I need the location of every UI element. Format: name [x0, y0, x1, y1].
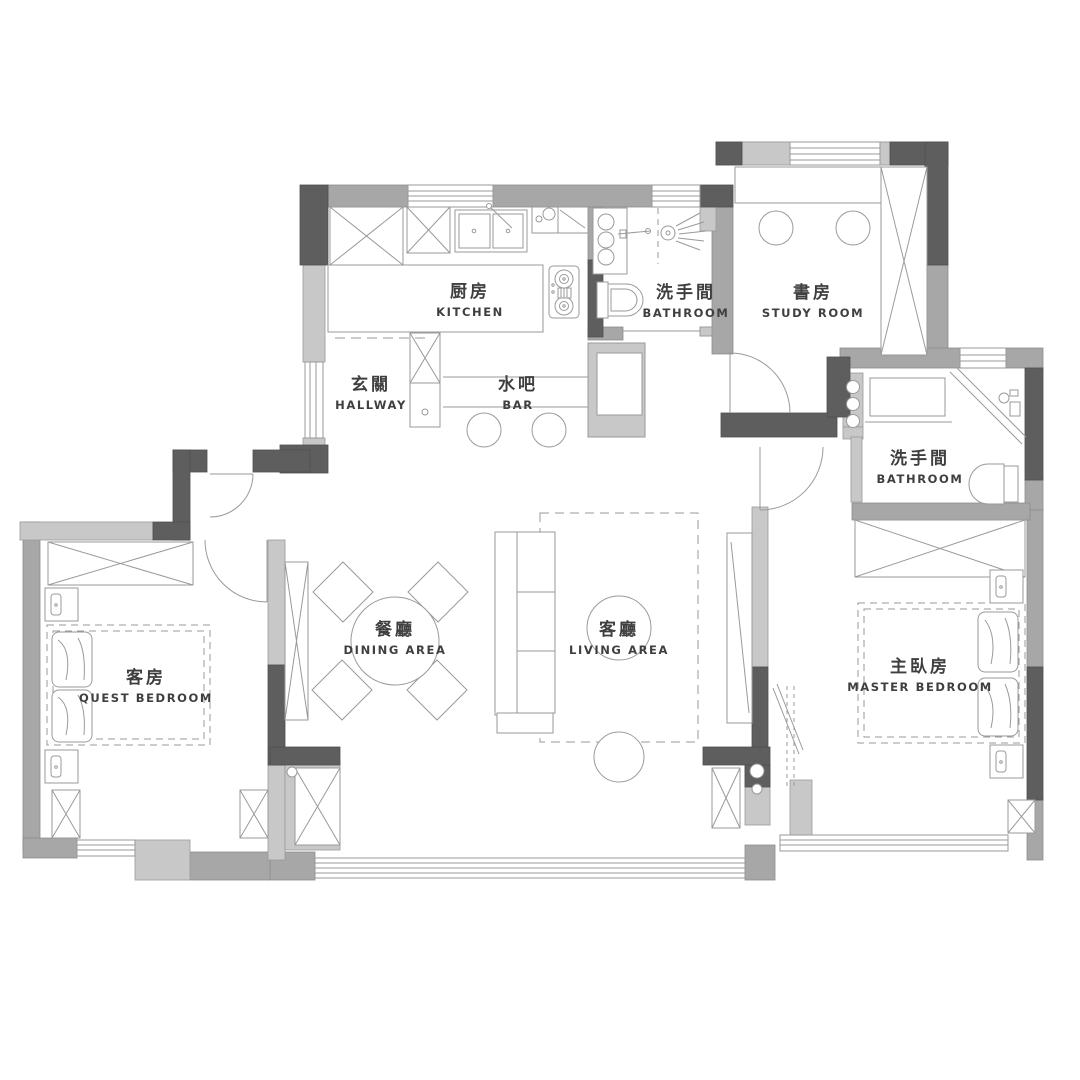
room-label-hallway-en: HALLWAY: [335, 398, 407, 412]
kitchen-cabinet-2: [407, 207, 450, 253]
room-label-kitchen-en: KITCHEN: [436, 305, 504, 319]
room-label-kitchen: 厨房 KITCHEN: [436, 277, 504, 319]
room-label-bathroom-right: 洗手間 BATHROOM: [877, 444, 964, 486]
master-door: [760, 447, 823, 510]
room-label-kitchen-zh: 厨房: [436, 277, 504, 302]
guest-wardrobe: [48, 542, 193, 585]
floor-plan-drawing: [0, 0, 1080, 1080]
room-label-bar-zh: 水吧: [498, 370, 538, 395]
tv-console: [727, 533, 752, 723]
room-label-master-bedroom-zh: 主臥房: [847, 652, 993, 677]
room-label-bar: 水吧 BAR: [498, 370, 538, 412]
kitchen-counter-corner: [532, 207, 588, 233]
room-label-bathroom-top-en: BATHROOM: [643, 306, 730, 320]
room-label-living-en: LIVING AREA: [569, 643, 669, 657]
room-label-bathroom-right-en: BATHROOM: [877, 472, 964, 486]
master-nightstand-bottom: [990, 745, 1023, 778]
bathroom-top-door: [623, 327, 712, 336]
shower-fixture-icon: [999, 390, 1020, 416]
entry-door: [210, 474, 253, 517]
window-bathroom-right: [960, 348, 1006, 368]
master-nightstand-top: [990, 570, 1023, 603]
room-label-guest-bedroom-en: QUEST BEDROOM: [79, 691, 213, 705]
window-balcony: [315, 858, 745, 878]
hallway-cabinet: [410, 333, 440, 427]
room-label-living-zh: 客廳: [569, 615, 669, 640]
sofa: [495, 532, 555, 733]
room-label-hallway: 玄關 HALLWAY: [335, 370, 407, 412]
shower-head-icon: [661, 213, 706, 250]
study-wardrobe: [881, 167, 927, 355]
room-label-study-zh: 書房: [762, 278, 864, 303]
window-kitchen-top: [408, 185, 493, 207]
fridge-unit: [588, 343, 645, 437]
column-bottom-right: [1008, 800, 1035, 833]
study-door: [730, 352, 790, 413]
leaning-mirror: [773, 684, 803, 786]
room-label-dining: 餐廳 DINING AREA: [344, 615, 447, 657]
room-label-bathroom-right-zh: 洗手間: [877, 444, 964, 469]
room-label-guest-bedroom: 客房 QUEST BEDROOM: [79, 663, 213, 705]
room-label-bathroom-top-zh: 洗手間: [643, 278, 730, 303]
study-desk: [735, 167, 881, 203]
room-label-bar-en: BAR: [498, 398, 538, 412]
vanity-right: [870, 378, 945, 416]
kitchen-stove: [549, 266, 579, 318]
guest-nightstand-top: [45, 588, 78, 621]
room-label-master-bedroom: 主臥房 MASTER BEDROOM: [847, 652, 993, 694]
room-label-bathroom-top: 洗手間 BATHROOM: [643, 278, 730, 320]
room-label-dining-en: DINING AREA: [344, 643, 447, 657]
window-study: [790, 142, 880, 165]
toilet-top: [597, 282, 643, 318]
room-label-master-bedroom-en: MASTER BEDROOM: [847, 680, 993, 694]
study-chair-2: [836, 211, 870, 245]
window-hallway-west: [305, 362, 323, 438]
guest-door: [205, 540, 267, 602]
floor-plan-page: 厨房 KITCHEN 洗手間 BATHROOM 書房 STUDY ROOM 玄關…: [0, 0, 1080, 1080]
side-table: [594, 732, 644, 782]
guest-column-right: [240, 790, 268, 838]
room-label-living: 客廳 LIVING AREA: [569, 615, 669, 657]
study-chair-1: [759, 211, 793, 245]
room-label-study: 書房 STUDY ROOM: [762, 278, 864, 320]
window-top-2: [652, 185, 700, 207]
room-label-dining-zh: 餐廳: [344, 615, 447, 640]
kitchen-cabinet-1: [330, 207, 403, 265]
room-label-hallway-zh: 玄關: [335, 370, 407, 395]
guest-column-left: [52, 790, 80, 838]
room-label-study-en: STUDY ROOM: [762, 306, 864, 320]
balcony-cabinet-left: [287, 767, 340, 845]
window-master-south: [780, 835, 1008, 851]
window-guest-south: [77, 840, 135, 856]
toilet-right: [969, 464, 1018, 504]
room-label-guest-bedroom-zh: 客房: [79, 663, 213, 688]
shower-glass: [950, 367, 1026, 444]
kitchen-sink: [455, 204, 527, 253]
guest-nightstand-bottom: [45, 750, 78, 783]
master-closet: [855, 520, 1025, 577]
dining-cabinet: [285, 562, 308, 720]
